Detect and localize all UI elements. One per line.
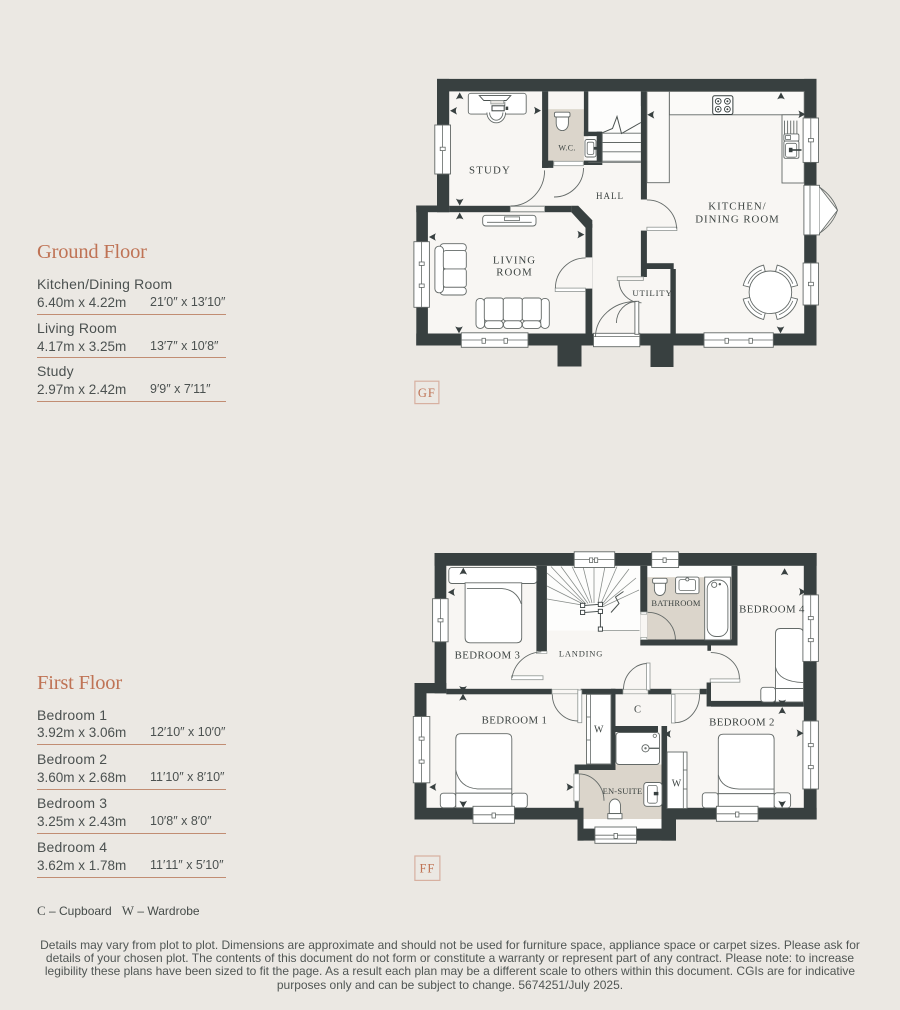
svg-text:BATHROOM: BATHROOM: [651, 598, 701, 608]
svg-text:W: W: [594, 725, 604, 736]
svg-text:ROOM: ROOM: [496, 267, 532, 279]
svg-text:BEDROOM 3: BEDROOM 3: [455, 650, 521, 662]
svg-text:LANDING: LANDING: [559, 649, 603, 659]
svg-text:FF: FF: [419, 861, 435, 875]
svg-text:BEDROOM 4: BEDROOM 4: [739, 604, 805, 616]
svg-text:DINING ROOM: DINING ROOM: [695, 214, 779, 226]
svg-text:LIVING: LIVING: [493, 255, 536, 267]
svg-text:BEDROOM 1: BEDROOM 1: [482, 715, 548, 727]
svg-text:UTILITY: UTILITY: [632, 288, 672, 298]
svg-text:C: C: [634, 705, 641, 716]
svg-text:W.C.: W.C.: [558, 144, 575, 153]
svg-text:W: W: [672, 778, 682, 789]
svg-text:BEDROOM 2: BEDROOM 2: [709, 717, 775, 729]
svg-text:EN-SUITE: EN-SUITE: [603, 786, 643, 796]
svg-text:STUDY: STUDY: [469, 165, 511, 177]
svg-text:HALL: HALL: [596, 191, 624, 201]
svg-text:GF: GF: [418, 386, 436, 400]
svg-text:KITCHEN/: KITCHEN/: [708, 201, 766, 213]
